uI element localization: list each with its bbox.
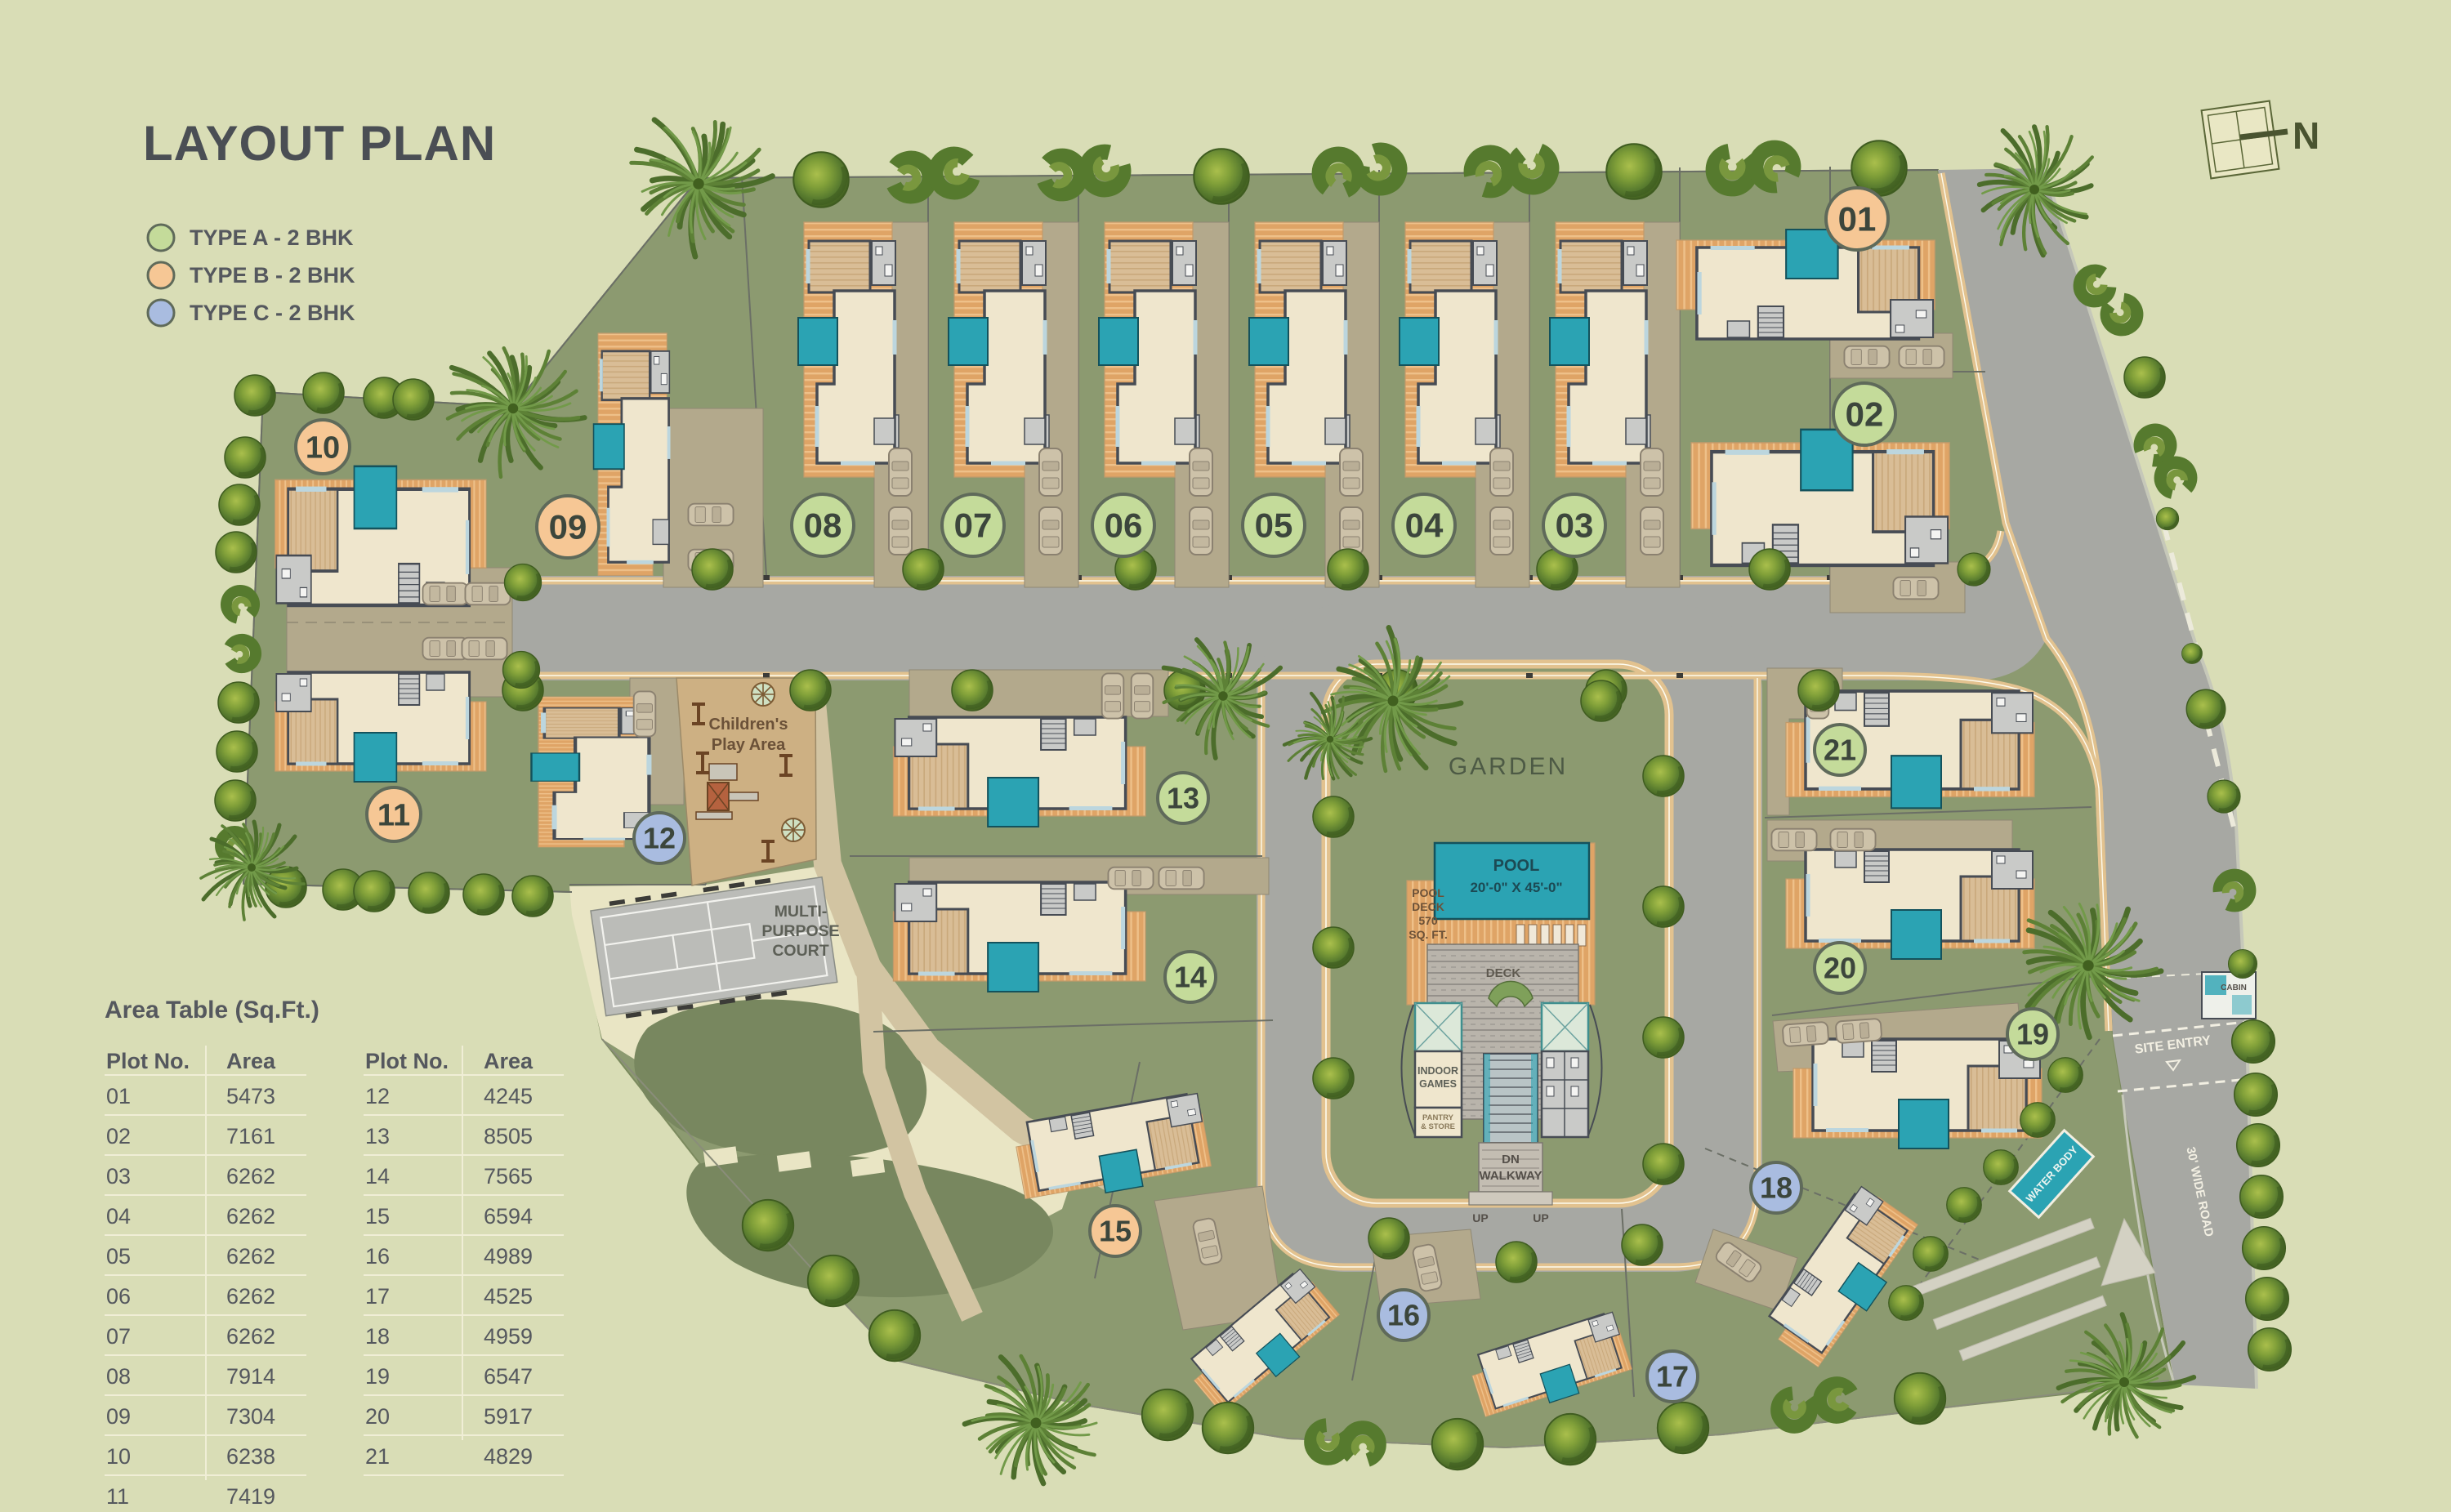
svg-text:07: 07 [954, 506, 993, 545]
svg-text:6262: 6262 [226, 1164, 275, 1189]
svg-text:6262: 6262 [226, 1204, 275, 1229]
svg-text:5917: 5917 [484, 1404, 533, 1429]
svg-text:7914: 7914 [226, 1364, 275, 1389]
svg-text:12: 12 [643, 822, 676, 855]
svg-text:4245: 4245 [484, 1084, 533, 1108]
svg-text:PANTRY: PANTRY [1422, 1113, 1454, 1122]
svg-text:UP: UP [1533, 1211, 1548, 1224]
svg-text:08: 08 [106, 1364, 131, 1389]
svg-text:N: N [2293, 114, 2319, 157]
svg-text:Area: Area [226, 1049, 276, 1073]
svg-text:7161: 7161 [226, 1124, 275, 1148]
svg-text:CABIN: CABIN [2221, 983, 2247, 992]
svg-text:01: 01 [106, 1084, 131, 1108]
svg-text:19: 19 [365, 1364, 390, 1389]
svg-text:GAMES: GAMES [1419, 1078, 1457, 1090]
svg-text:21: 21 [1824, 734, 1856, 767]
svg-text:DECK: DECK [1486, 966, 1521, 980]
svg-text:13: 13 [365, 1124, 390, 1148]
svg-text:16: 16 [1387, 1299, 1420, 1332]
svg-text:19: 19 [2016, 1018, 2049, 1051]
svg-text:8505: 8505 [484, 1124, 533, 1148]
svg-text:4525: 4525 [484, 1284, 533, 1309]
svg-text:7419: 7419 [226, 1484, 275, 1509]
svg-text:6594: 6594 [484, 1204, 533, 1229]
svg-text:Plot No.: Plot No. [106, 1049, 190, 1073]
svg-text:7565: 7565 [484, 1164, 533, 1189]
svg-text:SQ. FT.: SQ. FT. [1409, 928, 1447, 941]
svg-text:DN: DN [1502, 1153, 1520, 1166]
svg-text:TYPE B - 2 BHK: TYPE B - 2 BHK [190, 263, 355, 288]
svg-text:10: 10 [106, 1444, 131, 1469]
svg-text:15: 15 [365, 1204, 390, 1229]
svg-text:Area Table (Sq.Ft.): Area Table (Sq.Ft.) [105, 997, 319, 1024]
svg-text:20'-0" X 45'-0": 20'-0" X 45'-0" [1470, 880, 1562, 895]
svg-text:14: 14 [365, 1164, 390, 1189]
svg-text:20: 20 [365, 1404, 390, 1429]
svg-text:06: 06 [106, 1284, 131, 1309]
svg-text:03: 03 [106, 1164, 131, 1189]
svg-text:01: 01 [1838, 200, 1877, 239]
svg-text:LAYOUT PLAN: LAYOUT PLAN [143, 116, 496, 171]
svg-text:COURT: COURT [772, 942, 828, 960]
svg-text:14: 14 [1174, 961, 1207, 994]
svg-text:4829: 4829 [484, 1444, 533, 1469]
svg-text:& STORE: & STORE [1421, 1122, 1455, 1131]
svg-text:PURPOSE: PURPOSE [761, 922, 839, 940]
svg-text:INDOOR: INDOOR [1417, 1065, 1458, 1077]
svg-text:04: 04 [106, 1204, 131, 1229]
svg-text:20: 20 [1824, 952, 1856, 985]
svg-text:4989: 4989 [484, 1244, 533, 1269]
svg-text:17: 17 [1656, 1360, 1689, 1394]
svg-text:10: 10 [306, 430, 340, 465]
svg-text:WALKWAY: WALKWAY [1480, 1169, 1542, 1183]
svg-text:570: 570 [1418, 914, 1438, 927]
svg-text:13: 13 [1167, 782, 1199, 815]
svg-text:DECK: DECK [1412, 900, 1444, 913]
svg-text:TYPE A - 2 BHK: TYPE A - 2 BHK [190, 225, 354, 250]
svg-text:18: 18 [1760, 1171, 1792, 1205]
svg-text:4959: 4959 [484, 1324, 533, 1349]
svg-text:05: 05 [106, 1244, 131, 1269]
svg-text:6547: 6547 [484, 1364, 533, 1389]
svg-text:18: 18 [365, 1324, 390, 1349]
svg-text:6262: 6262 [226, 1244, 275, 1269]
svg-text:02: 02 [106, 1124, 131, 1148]
svg-text:7304: 7304 [226, 1404, 275, 1429]
svg-text:07: 07 [106, 1324, 131, 1349]
svg-text:Children's: Children's [709, 716, 788, 734]
svg-text:09: 09 [549, 508, 587, 546]
svg-text:6262: 6262 [226, 1324, 275, 1349]
svg-text:05: 05 [1255, 506, 1293, 545]
svg-text:15: 15 [1099, 1215, 1132, 1248]
svg-text:11: 11 [377, 798, 410, 832]
svg-text:5473: 5473 [226, 1084, 275, 1108]
svg-text:GARDEN: GARDEN [1449, 753, 1568, 780]
svg-text:POOL: POOL [1493, 857, 1540, 875]
svg-text:17: 17 [365, 1284, 390, 1309]
svg-text:MULTI-: MULTI- [775, 903, 828, 921]
svg-text:03: 03 [1556, 506, 1594, 545]
svg-text:16: 16 [365, 1244, 390, 1269]
svg-text:06: 06 [1105, 506, 1143, 545]
svg-text:Play Area: Play Area [712, 736, 786, 754]
svg-text:TYPE C - 2 BHK: TYPE C - 2 BHK [190, 301, 355, 325]
svg-text:08: 08 [804, 506, 842, 545]
svg-text:UP: UP [1472, 1211, 1488, 1224]
svg-text:21: 21 [365, 1444, 390, 1469]
svg-text:Area: Area [484, 1049, 534, 1073]
svg-text:POOL: POOL [1412, 886, 1444, 899]
svg-text:11: 11 [106, 1484, 129, 1509]
svg-text:6238: 6238 [226, 1444, 275, 1469]
svg-text:04: 04 [1405, 506, 1444, 545]
svg-text:02: 02 [1846, 395, 1884, 434]
svg-text:6262: 6262 [226, 1284, 275, 1309]
svg-text:Plot No.: Plot No. [365, 1049, 449, 1073]
svg-text:09: 09 [106, 1404, 131, 1429]
svg-text:12: 12 [365, 1084, 390, 1108]
